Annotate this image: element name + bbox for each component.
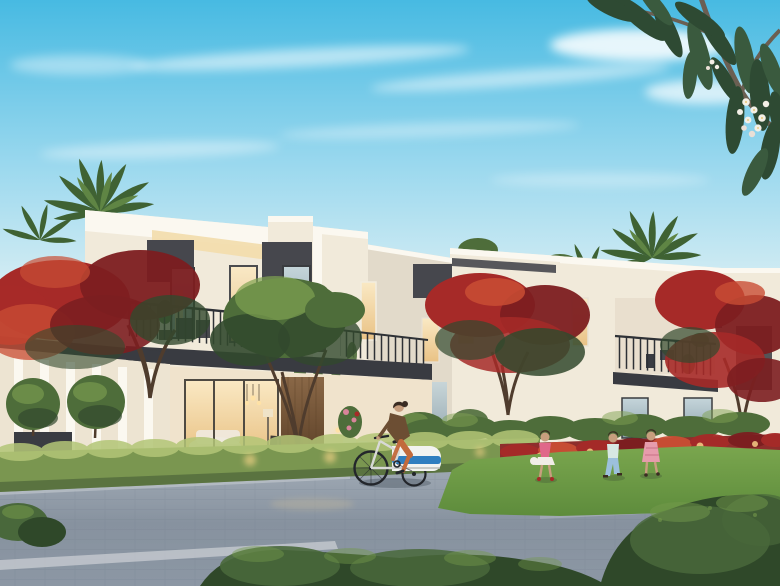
architectural-rendering (0, 0, 780, 586)
rose-bush (338, 406, 362, 438)
light-pool (270, 498, 354, 510)
white-ball (530, 457, 538, 465)
floor-lamp (263, 409, 273, 417)
townhouse-render-canvas (0, 0, 780, 586)
